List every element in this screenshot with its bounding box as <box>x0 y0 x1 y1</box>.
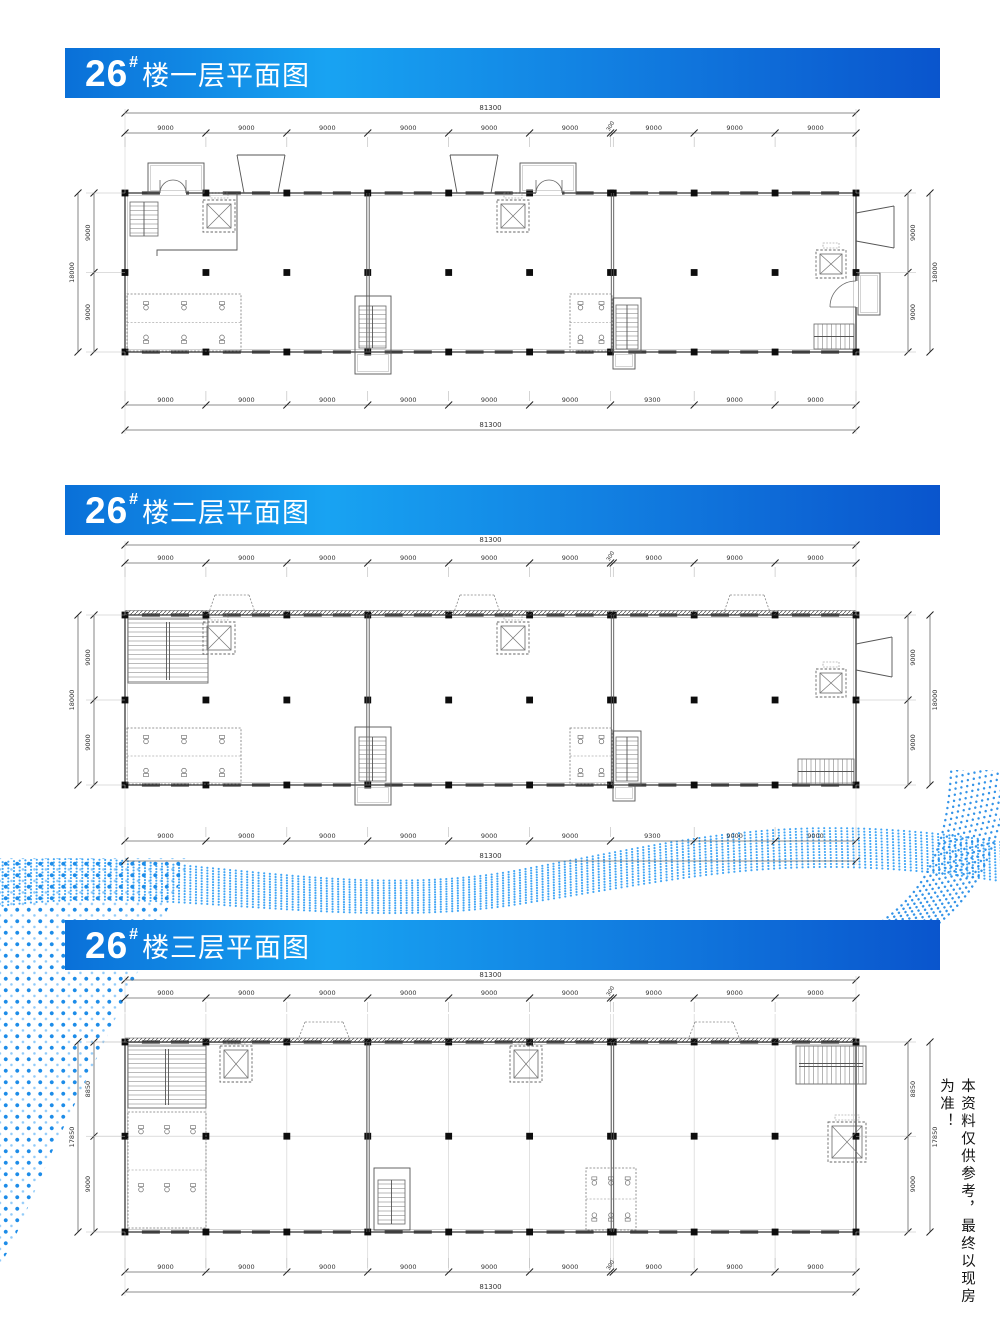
svg-text:9000: 9000 <box>645 989 662 997</box>
svg-text:18000: 18000 <box>68 262 76 283</box>
floor-plan-drawing-floor3: 8130090009000900090009000900030090009000… <box>0 972 1000 1318</box>
svg-text:9000: 9000 <box>400 124 417 132</box>
building-number-hash: # <box>129 491 138 509</box>
svg-text:9000: 9000 <box>807 124 824 132</box>
svg-text:9000: 9000 <box>238 124 255 132</box>
svg-text:9000: 9000 <box>400 989 417 997</box>
svg-text:9000: 9000 <box>909 304 917 321</box>
section-title: 楼二层平面图 <box>142 491 310 530</box>
svg-text:18000: 18000 <box>931 262 939 283</box>
svg-text:9000: 9000 <box>84 304 92 321</box>
svg-text:9000: 9000 <box>645 554 662 562</box>
svg-text:9000: 9000 <box>807 554 824 562</box>
svg-text:9300: 9300 <box>644 832 661 840</box>
building-outline <box>122 190 860 356</box>
svg-text:9000: 9000 <box>481 989 498 997</box>
svg-text:9000: 9000 <box>157 124 174 132</box>
svg-text:9000: 9000 <box>726 124 743 132</box>
section-header-floor3: 26#楼三层平面图 <box>65 920 940 970</box>
svg-text:9000: 9000 <box>562 124 579 132</box>
svg-text:9000: 9000 <box>319 396 336 404</box>
svg-text:9000: 9000 <box>238 396 255 404</box>
svg-text:18000: 18000 <box>68 690 76 711</box>
dimension-lines: 8130090009000900090009000900030090009000… <box>68 972 939 1296</box>
svg-text:9000: 9000 <box>645 124 662 132</box>
svg-text:18000: 18000 <box>931 690 939 711</box>
dimension-lines: 8130090009000900090009000900030090009000… <box>68 104 939 434</box>
svg-text:9000: 9000 <box>84 1176 92 1193</box>
svg-text:9000: 9000 <box>84 734 92 751</box>
svg-text:9000: 9000 <box>238 554 255 562</box>
svg-text:9000: 9000 <box>726 554 743 562</box>
svg-text:9000: 9000 <box>726 832 743 840</box>
disclaimer-vertical-text: 本资料仅供参考，最终以现房为准！ <box>936 1078 978 1318</box>
svg-text:9000: 9000 <box>562 832 579 840</box>
brochure-page: 26#楼一层平面图 26#楼二层平面图 26#楼三层平面图 8130090009… <box>0 0 1000 1318</box>
svg-text:9300: 9300 <box>644 396 661 404</box>
dimension-lines: 8130090009000900090009000900030090009000… <box>68 537 939 865</box>
building-number: 26 <box>85 492 128 529</box>
svg-text:81300: 81300 <box>479 537 501 544</box>
svg-text:9000: 9000 <box>319 989 336 997</box>
svg-text:9000: 9000 <box>726 989 743 997</box>
building-outline <box>122 612 860 789</box>
svg-text:9000: 9000 <box>238 989 255 997</box>
svg-text:9000: 9000 <box>562 1263 579 1271</box>
svg-text:81300: 81300 <box>479 972 501 979</box>
svg-text:9000: 9000 <box>319 1263 336 1271</box>
svg-text:9000: 9000 <box>400 396 417 404</box>
svg-text:9000: 9000 <box>909 734 917 751</box>
building-number-hash: # <box>129 926 138 944</box>
svg-text:9000: 9000 <box>481 396 498 404</box>
building-number: 26 <box>85 55 128 92</box>
floor-plan-drawing-floor2: 8130090009000900090009000900030090009000… <box>0 537 1000 867</box>
svg-text:81300: 81300 <box>479 1283 501 1291</box>
svg-text:9000: 9000 <box>157 1263 174 1271</box>
svg-text:81300: 81300 <box>479 852 501 860</box>
svg-text:9000: 9000 <box>645 1263 662 1271</box>
svg-text:9000: 9000 <box>319 832 336 840</box>
svg-text:9000: 9000 <box>238 1263 255 1271</box>
svg-text:17850: 17850 <box>68 1127 76 1148</box>
svg-text:9000: 9000 <box>807 832 824 840</box>
svg-text:81300: 81300 <box>479 104 501 112</box>
svg-text:9000: 9000 <box>909 649 917 666</box>
svg-text:9000: 9000 <box>84 649 92 666</box>
svg-text:9000: 9000 <box>319 124 336 132</box>
svg-text:9000: 9000 <box>562 989 579 997</box>
svg-text:9000: 9000 <box>481 832 498 840</box>
svg-text:9000: 9000 <box>319 554 336 562</box>
svg-text:8850: 8850 <box>84 1081 92 1098</box>
svg-text:9000: 9000 <box>400 1263 417 1271</box>
svg-text:9000: 9000 <box>400 554 417 562</box>
plan-features <box>125 1022 866 1232</box>
svg-text:9000: 9000 <box>84 224 92 241</box>
svg-text:9000: 9000 <box>562 396 579 404</box>
svg-text:9000: 9000 <box>807 1263 824 1271</box>
svg-text:9000: 9000 <box>807 989 824 997</box>
svg-text:9000: 9000 <box>157 989 174 997</box>
svg-text:9000: 9000 <box>481 554 498 562</box>
svg-text:9000: 9000 <box>562 554 579 562</box>
svg-text:8850: 8850 <box>909 1081 917 1098</box>
section-header-floor1: 26#楼一层平面图 <box>65 48 940 98</box>
svg-text:9000: 9000 <box>726 396 743 404</box>
section-title: 楼三层平面图 <box>142 926 310 965</box>
svg-text:9000: 9000 <box>481 124 498 132</box>
svg-text:9000: 9000 <box>909 224 917 241</box>
plan-features <box>127 155 894 374</box>
svg-text:81300: 81300 <box>479 421 501 429</box>
svg-text:9000: 9000 <box>807 396 824 404</box>
svg-text:9000: 9000 <box>157 396 174 404</box>
section-header-floor2: 26#楼二层平面图 <box>65 485 940 535</box>
building-number: 26 <box>85 927 128 964</box>
svg-text:9000: 9000 <box>481 1263 498 1271</box>
building-number-hash: # <box>129 54 138 72</box>
svg-text:9000: 9000 <box>726 1263 743 1271</box>
svg-text:9000: 9000 <box>157 832 174 840</box>
floor-plan-drawing-floor1: 8130090009000900090009000900030090009000… <box>0 100 1000 445</box>
svg-text:9000: 9000 <box>909 1176 917 1193</box>
svg-text:9000: 9000 <box>238 832 255 840</box>
section-title: 楼一层平面图 <box>142 54 310 93</box>
svg-text:9000: 9000 <box>400 832 417 840</box>
svg-text:9000: 9000 <box>157 554 174 562</box>
